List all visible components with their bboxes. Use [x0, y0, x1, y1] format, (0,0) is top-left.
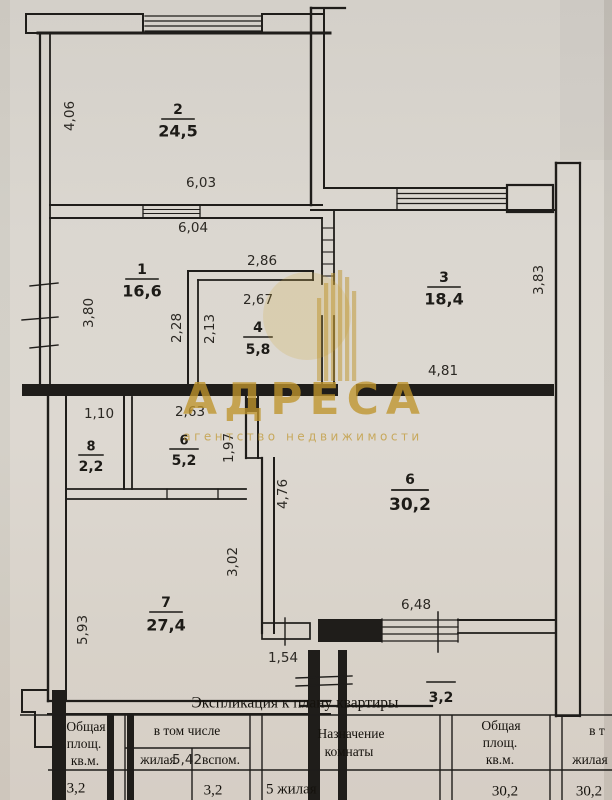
- floor-plan-drawing: 4,06 6,03 6,04 2,86 2,67 3,80 2,28 2,13 …: [0, 0, 612, 800]
- logo-bar: [345, 277, 349, 381]
- header-total-area-1: Общая: [66, 719, 105, 734]
- header-total-area-3: кв.м.: [71, 753, 99, 768]
- wall-filled: [127, 714, 134, 800]
- dimension-6-04: 6,04: [178, 220, 208, 236]
- header-living: жилая: [139, 752, 176, 767]
- dimension-3-80: 3,80: [81, 298, 97, 328]
- room-area: 5,8: [246, 342, 271, 358]
- room-area: 2,2: [79, 459, 104, 475]
- room-area: 5,2: [172, 453, 197, 469]
- logo-bar: [324, 283, 328, 381]
- wall-filled: [52, 690, 66, 800]
- logo-bar: [317, 298, 321, 381]
- room-number: 7: [161, 595, 171, 611]
- dimension-5-42: 5,42: [172, 752, 202, 768]
- dimension-3-02: 3,02: [225, 547, 241, 577]
- dimension-6-48: 6,48: [401, 597, 431, 613]
- dimension-2-13: 2,13: [202, 314, 218, 344]
- dimension-1-54: 1,54: [268, 650, 298, 666]
- logo-bar: [338, 270, 342, 381]
- dimension-2-86: 2,86: [247, 253, 277, 269]
- dimension-6-03: 6,03: [186, 175, 216, 191]
- watermark-agency-name: АДРЕСА: [183, 374, 427, 425]
- cell-auxiliary: 3,2: [204, 782, 223, 798]
- room-area: 24,5: [158, 122, 197, 141]
- cell-living2: 30,2: [576, 783, 602, 799]
- logo-bar: [352, 291, 356, 381]
- dimension-2-28: 2,28: [169, 313, 185, 343]
- header-living2: жилая: [571, 752, 608, 767]
- table-title: Экспликация к плану квартиры: [192, 695, 399, 712]
- wall-filled: [318, 619, 382, 642]
- header-purpose-2: комнаты: [325, 744, 374, 759]
- room-area: 30,2: [389, 495, 431, 515]
- room-number: 4: [253, 320, 263, 336]
- watermark-tagline: агентство недвижимости: [183, 430, 422, 444]
- header-total2-3: кв.м.: [486, 752, 514, 767]
- wall-filled: [308, 650, 320, 800]
- logo-bar: [331, 273, 335, 381]
- room-number: 6: [405, 472, 415, 488]
- dimension-5-93: 5,93: [75, 615, 91, 645]
- room-number: 1: [137, 262, 147, 278]
- room-area: 18,4: [424, 290, 463, 309]
- header-purpose-1: Назначение: [318, 726, 385, 741]
- room-number: 8: [86, 440, 95, 455]
- header-including: в том числе: [154, 723, 221, 738]
- scan-shadow-topright: [560, 0, 612, 160]
- header-auxiliary: вспом.: [202, 752, 240, 767]
- dimension-4-06: 4,06: [62, 101, 78, 131]
- dimension-1-10: 1,10: [84, 406, 114, 422]
- cell-total-area2: 30,2: [492, 783, 518, 799]
- dimension-3-83: 3,83: [531, 265, 547, 295]
- room-area: 3,2: [429, 690, 454, 706]
- wall-filled: [338, 650, 347, 800]
- room-area: 27,4: [146, 616, 185, 635]
- wall-filled: [107, 714, 114, 800]
- header-total2-2: площ.: [483, 735, 517, 750]
- room-number: 2: [173, 102, 183, 118]
- dimension-4-81: 4,81: [428, 363, 458, 379]
- header-total-area-2: площ.: [67, 736, 101, 751]
- room-area: 16,6: [122, 282, 161, 301]
- cell-purpose: 5 жилая: [266, 781, 317, 797]
- room-number: 3: [439, 270, 449, 286]
- scan-edge-left: [0, 0, 10, 800]
- scanned-floor-plan-page: 4,06 6,03 6,04 2,86 2,67 3,80 2,28 2,13 …: [0, 0, 612, 800]
- cell-total-area: 3,2: [67, 780, 86, 796]
- watermark-logo-circle: [263, 272, 351, 360]
- header-including2: в т: [589, 723, 605, 738]
- dimension-4-76: 4,76: [275, 479, 291, 509]
- header-total2-1: Общая: [481, 718, 520, 733]
